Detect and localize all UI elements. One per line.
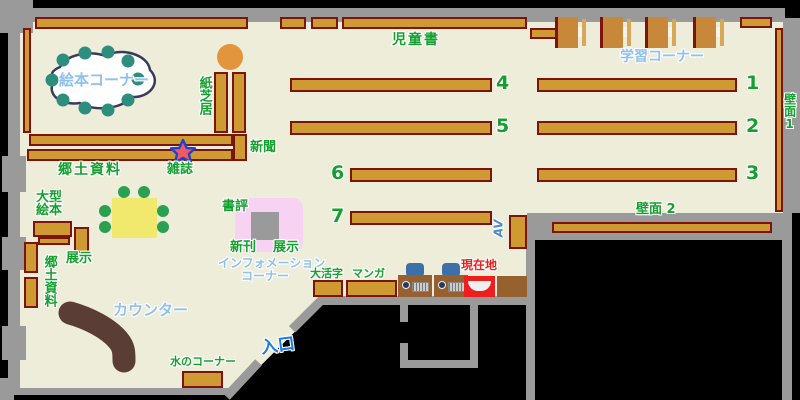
- label-shinbun: 新聞: [250, 141, 276, 155]
- bookshelf-5: [290, 121, 492, 135]
- current-location-arc-icon: [468, 281, 491, 291]
- kyodo-shelf-row-1: [29, 134, 233, 146]
- label-kyodo-shiryo-left: 郷土資料: [42, 255, 56, 307]
- stairwell-wall-right: [470, 305, 478, 368]
- kyodo-shelf-row-2: [27, 149, 233, 161]
- label-counter: カウンター: [113, 303, 188, 319]
- table-chair: [99, 205, 111, 217]
- table-chair: [99, 221, 111, 233]
- study-desk-1: [555, 17, 586, 48]
- label-zasshi: 雑誌: [167, 163, 193, 177]
- library-floor-map: 児童書 学習コーナー 壁面1 壁面 2 絵本コーナー 紙芝居 新聞 雑誌 郷土資…: [0, 0, 800, 400]
- label-information-2: コーナー: [241, 270, 289, 283]
- table-chair: [157, 221, 169, 233]
- table-chair: [138, 186, 150, 198]
- kyodo-left-shelf-1: [24, 242, 38, 273]
- wall-bottom-middle: [318, 296, 535, 305]
- label-shinkan: 新刊: [230, 241, 256, 255]
- label-shohyo: 書評: [222, 200, 248, 214]
- study-desk-4: [693, 17, 724, 48]
- wall-shelf-ehon-left: [23, 28, 31, 133]
- label-av: AV: [493, 219, 506, 237]
- table-chair: [118, 186, 130, 198]
- label-genzaichi: 現在地: [461, 259, 497, 272]
- opac-terminal-1: [398, 263, 432, 297]
- keyboard-icon: [412, 282, 429, 292]
- kamishibai-shelf-1: [214, 72, 228, 133]
- bookshelf-6: [350, 168, 492, 182]
- label-tenji-display: 展示: [273, 241, 299, 255]
- mizu-corner-shelf: [182, 371, 223, 388]
- bookshelf-1: [537, 78, 737, 92]
- wall-left-pillar-3: [2, 326, 26, 360]
- shelf-number-7: 7: [331, 207, 344, 227]
- bookshelf-3: [537, 168, 737, 182]
- hekimen2-shelf: [552, 222, 772, 233]
- terminal-screen-icon: [402, 281, 410, 289]
- label-tenji-upper: 展示: [66, 252, 92, 266]
- label-kyodo-shiryo-upper: 郷土資料: [58, 163, 122, 178]
- shelf-number-1: 1: [746, 74, 759, 94]
- display-stand: [251, 212, 279, 240]
- label-kamishibai: 紙芝居: [197, 76, 211, 115]
- label-ogata-ehon: 大型絵本: [36, 191, 66, 217]
- stairwell-wall-left-top: [400, 305, 408, 322]
- wall-shelf-small: [530, 28, 558, 39]
- keyboard-icon: [448, 282, 465, 292]
- wall-left-pillar-1: [2, 156, 26, 192]
- study-desk-3: [645, 17, 676, 48]
- shinbun-shelf: [233, 134, 247, 161]
- wall-bottom-left: [8, 388, 232, 395]
- shelf-number-3: 3: [746, 164, 759, 184]
- reading-table: [112, 198, 157, 238]
- av-shelf: [509, 215, 527, 249]
- wall-shelf-hekimen1: [775, 28, 783, 212]
- manga-shelf: [346, 280, 397, 297]
- daikatsuji-shelf: [313, 280, 343, 297]
- shelf-number-6: 6: [331, 164, 344, 184]
- wall-shelf-top-4: [342, 17, 527, 29]
- label-hekimen1: 壁面1: [783, 93, 796, 131]
- bookshelf-2: [537, 121, 737, 135]
- wall-right-lower: [782, 213, 792, 400]
- kamishibai-shelf-2: [232, 72, 246, 133]
- wall-left-pillar-2: [2, 237, 26, 270]
- label-hekimen2: 壁面 2: [636, 203, 676, 217]
- label-jidosho: 児童書: [392, 33, 440, 48]
- bookshelf-7: [350, 211, 492, 225]
- kyodo-left-shelf-2: [24, 277, 38, 308]
- label-manga: マンガ: [352, 268, 385, 280]
- side-desk: [497, 276, 527, 297]
- shelf-number-2: 2: [746, 117, 759, 137]
- stairwell-wall-bottom: [400, 360, 478, 368]
- wall-shelf-top-2: [280, 17, 306, 29]
- round-stool: [217, 44, 243, 70]
- wall-center-vertical: [526, 240, 535, 400]
- label-ehon-corner: 絵本コーナー: [52, 73, 156, 89]
- wall-shelf-top-3: [311, 17, 338, 29]
- ogata-ehon-shelf-low: [38, 237, 70, 245]
- bookshelf-4: [290, 78, 492, 92]
- wall-shelf-top-right: [740, 17, 772, 28]
- table-chair: [157, 205, 169, 217]
- ogata-ehon-shelf: [33, 221, 72, 237]
- shelf-number-4: 4: [496, 74, 509, 94]
- wall-shelf-top-1: [35, 17, 248, 29]
- current-location-marker: [464, 276, 495, 297]
- label-daikatsuji: 大活字: [310, 268, 343, 280]
- label-gakushu-corner: 学習コーナー: [620, 50, 704, 65]
- shelf-number-5: 5: [496, 117, 509, 137]
- study-desk-2: [600, 17, 631, 48]
- label-mizu-corner: 水のコーナー: [170, 356, 236, 368]
- tenji-shelf: [74, 227, 89, 253]
- terminal-screen-icon: [438, 281, 446, 289]
